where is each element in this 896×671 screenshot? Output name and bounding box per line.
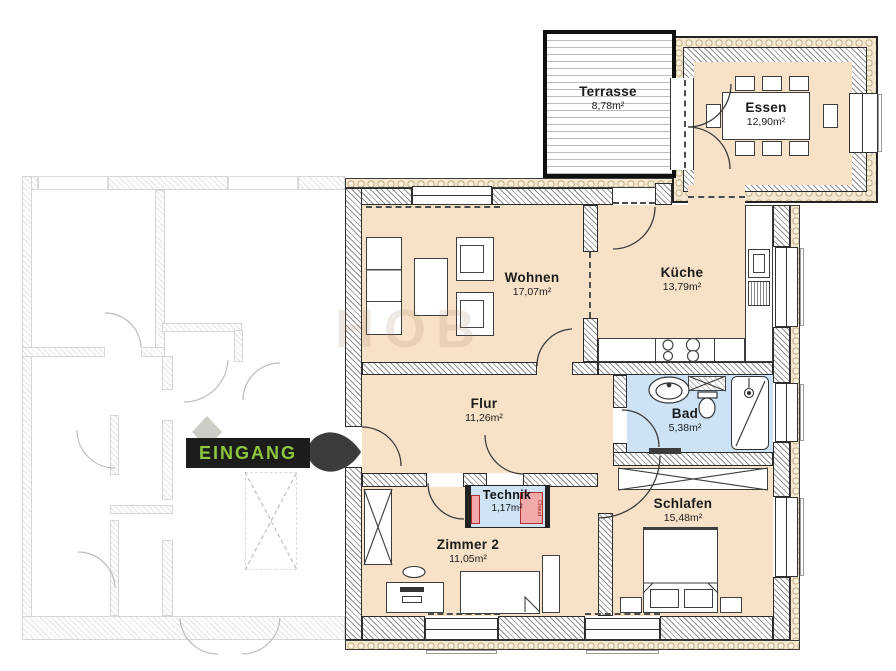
wohnen-window [412, 186, 492, 205]
kitchen-vent [748, 281, 770, 306]
shelf [542, 555, 560, 613]
chaud-label: Chaud [521, 493, 542, 523]
opening-dashes [585, 613, 660, 615]
armchair [456, 237, 494, 281]
bad-window [775, 383, 798, 442]
wall [110, 505, 173, 514]
essen-kueche-opening [688, 185, 745, 205]
opening-dashes [688, 196, 745, 198]
sofa [366, 237, 402, 335]
window-sill [800, 498, 804, 576]
wall [655, 183, 672, 205]
wardrobe [364, 489, 392, 565]
schlafen-window-right [775, 497, 798, 577]
pillow [684, 589, 713, 608]
washer-shelf [688, 376, 726, 391]
wall [773, 442, 790, 497]
wardrobe [618, 468, 768, 490]
wall [773, 327, 790, 383]
keyboard [402, 596, 422, 603]
insulation-band-bottom [345, 640, 800, 650]
dining-chair [706, 104, 721, 128]
single-bed [460, 571, 540, 614]
window [228, 176, 298, 190]
technik-unit [471, 495, 480, 524]
essen-terrace-door-opening [670, 78, 694, 170]
wall [660, 616, 773, 640]
opening-dashes [366, 206, 500, 208]
terrasse-deck [543, 30, 676, 178]
porch-canopy-outline [245, 472, 297, 570]
wall [345, 467, 362, 640]
wall [22, 347, 105, 357]
opening-dashes [613, 202, 655, 204]
window-sill [426, 650, 497, 654]
neighbor-apartment [0, 0, 360, 671]
opening-dashes [684, 80, 686, 168]
kueche-window [775, 247, 798, 327]
nightstand [720, 597, 742, 613]
wall [583, 318, 598, 362]
wall [492, 188, 613, 205]
wall [773, 205, 790, 247]
wall [162, 420, 173, 500]
zimmer2-window [425, 618, 498, 640]
wall [362, 362, 537, 375]
window-sill [800, 248, 804, 326]
wall [345, 188, 362, 427]
wall [362, 473, 427, 487]
shower [731, 376, 769, 450]
stove [655, 338, 715, 362]
wall [613, 452, 773, 466]
window-sill [878, 94, 882, 152]
window [38, 176, 108, 190]
wall [162, 540, 173, 616]
wall [572, 362, 598, 375]
nightstand [620, 597, 642, 613]
technik-wall-bar [545, 485, 550, 528]
monitor [400, 587, 424, 592]
wall [108, 176, 228, 190]
floor-plan: Chaud [0, 0, 896, 671]
wall [162, 356, 173, 390]
wall [298, 176, 345, 190]
dining-chair [789, 141, 809, 156]
insulation-band-top [345, 178, 676, 188]
opening-dashes [589, 252, 591, 318]
wall [598, 513, 613, 616]
technik-wall-bar [465, 485, 470, 528]
bath-mat [649, 448, 681, 454]
essen-window [849, 93, 878, 153]
dining-chair [823, 104, 838, 128]
wall [498, 616, 585, 640]
dining-chair [762, 141, 782, 156]
wall [110, 415, 119, 475]
wohnen-door-floor [537, 362, 572, 375]
coffee-table [414, 258, 448, 316]
kitchen-appliance [748, 249, 770, 278]
entrance-badge: EINGANG [186, 438, 310, 468]
window-sill [800, 384, 804, 441]
wall [613, 375, 627, 408]
wall [773, 577, 790, 640]
wall [162, 323, 242, 332]
dining-chair [735, 76, 755, 91]
schlafen-window-bottom [585, 618, 660, 640]
wall [598, 362, 773, 375]
dining-chair [735, 141, 755, 156]
dining-table [722, 92, 810, 140]
wall [110, 520, 119, 616]
wall [362, 616, 425, 640]
wall [22, 616, 345, 640]
dining-chair [789, 76, 809, 91]
pillow [650, 589, 679, 608]
wall [234, 330, 243, 362]
wall [583, 205, 598, 252]
dining-chair [762, 76, 782, 91]
wall [22, 176, 32, 640]
armchair [456, 292, 494, 336]
flur-floor [362, 375, 613, 473]
window-sill [586, 650, 659, 654]
